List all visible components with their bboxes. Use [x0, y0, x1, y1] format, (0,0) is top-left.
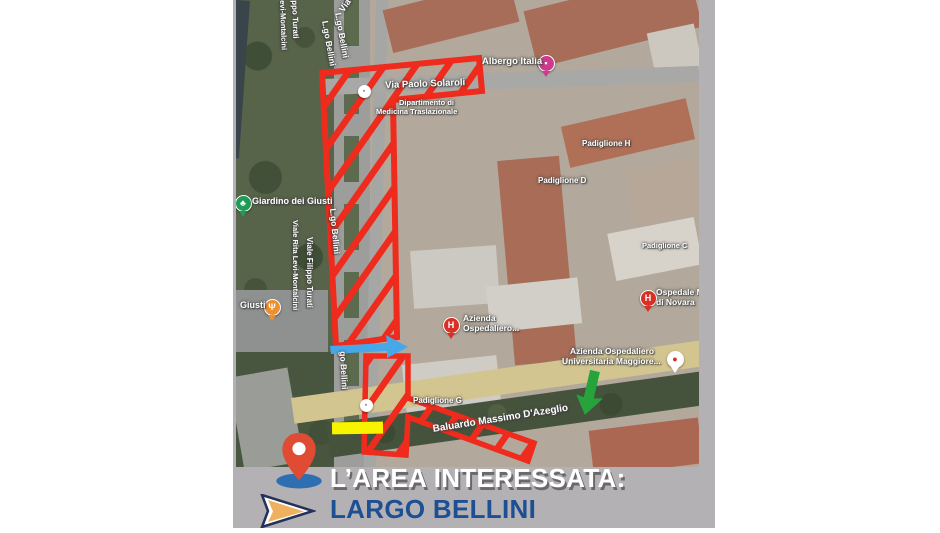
yellow-highlight-bar	[332, 422, 383, 435]
restricted-area-main	[322, 58, 482, 346]
location-pin-icon	[271, 430, 327, 495]
annotations-overlay	[236, 0, 699, 467]
restricted-area-south	[364, 356, 534, 461]
arrow-cursor-icon	[260, 494, 316, 533]
caption-area-name: LARGO BELLINI	[330, 494, 536, 525]
infographic-panel: ▪♣ΨHH●▪▪ Viappo Turatievi-MontalciniL.go…	[233, 0, 715, 528]
satellite-map: ▪♣ΨHH●▪▪ Viappo Turatievi-MontalciniL.go…	[236, 0, 699, 467]
green-arrow-icon	[572, 368, 608, 418]
caption-title: L’AREA INTERESSATA:	[330, 463, 626, 494]
